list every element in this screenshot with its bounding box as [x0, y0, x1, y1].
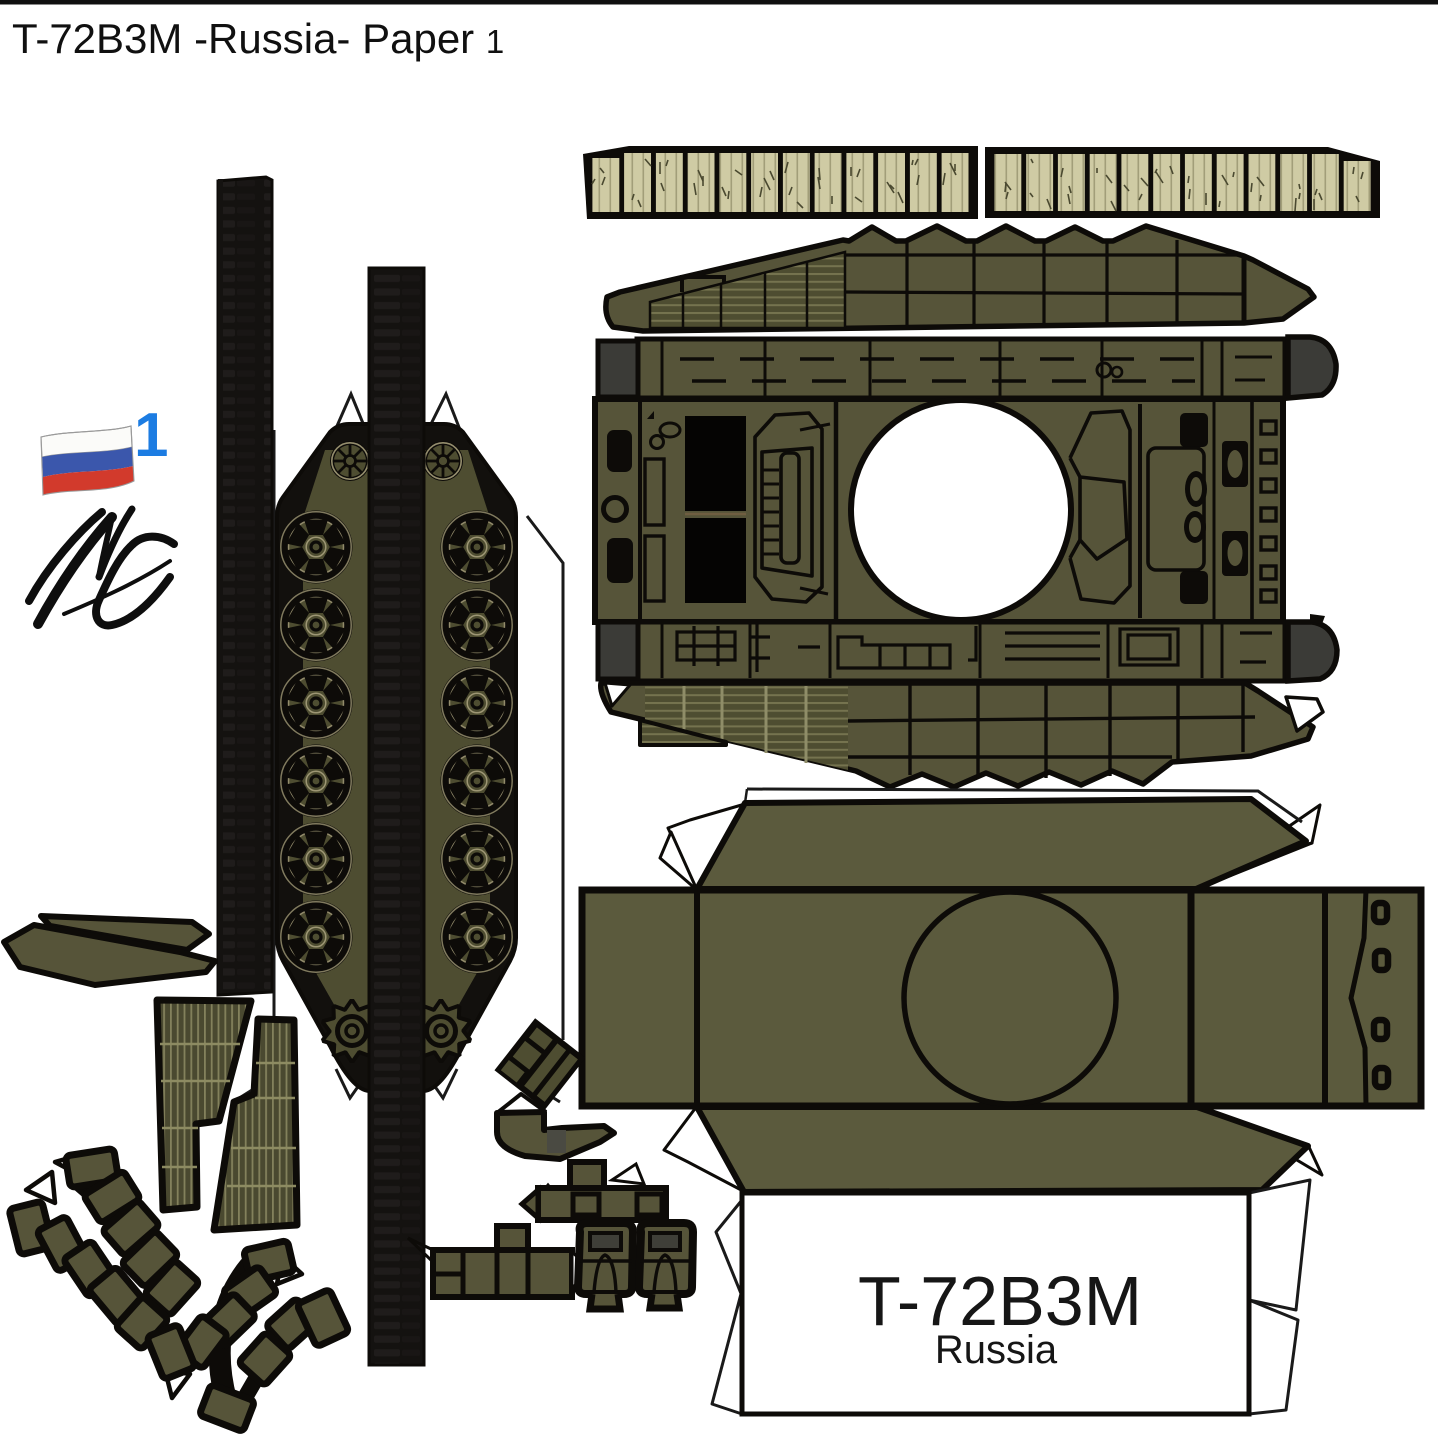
svg-text:1: 1 — [134, 401, 168, 470]
svg-text:Russia: Russia — [935, 1328, 1058, 1372]
svg-text:T-72B3M -Russia- Paper 1: T-72B3M -Russia- Paper 1 — [12, 15, 504, 62]
